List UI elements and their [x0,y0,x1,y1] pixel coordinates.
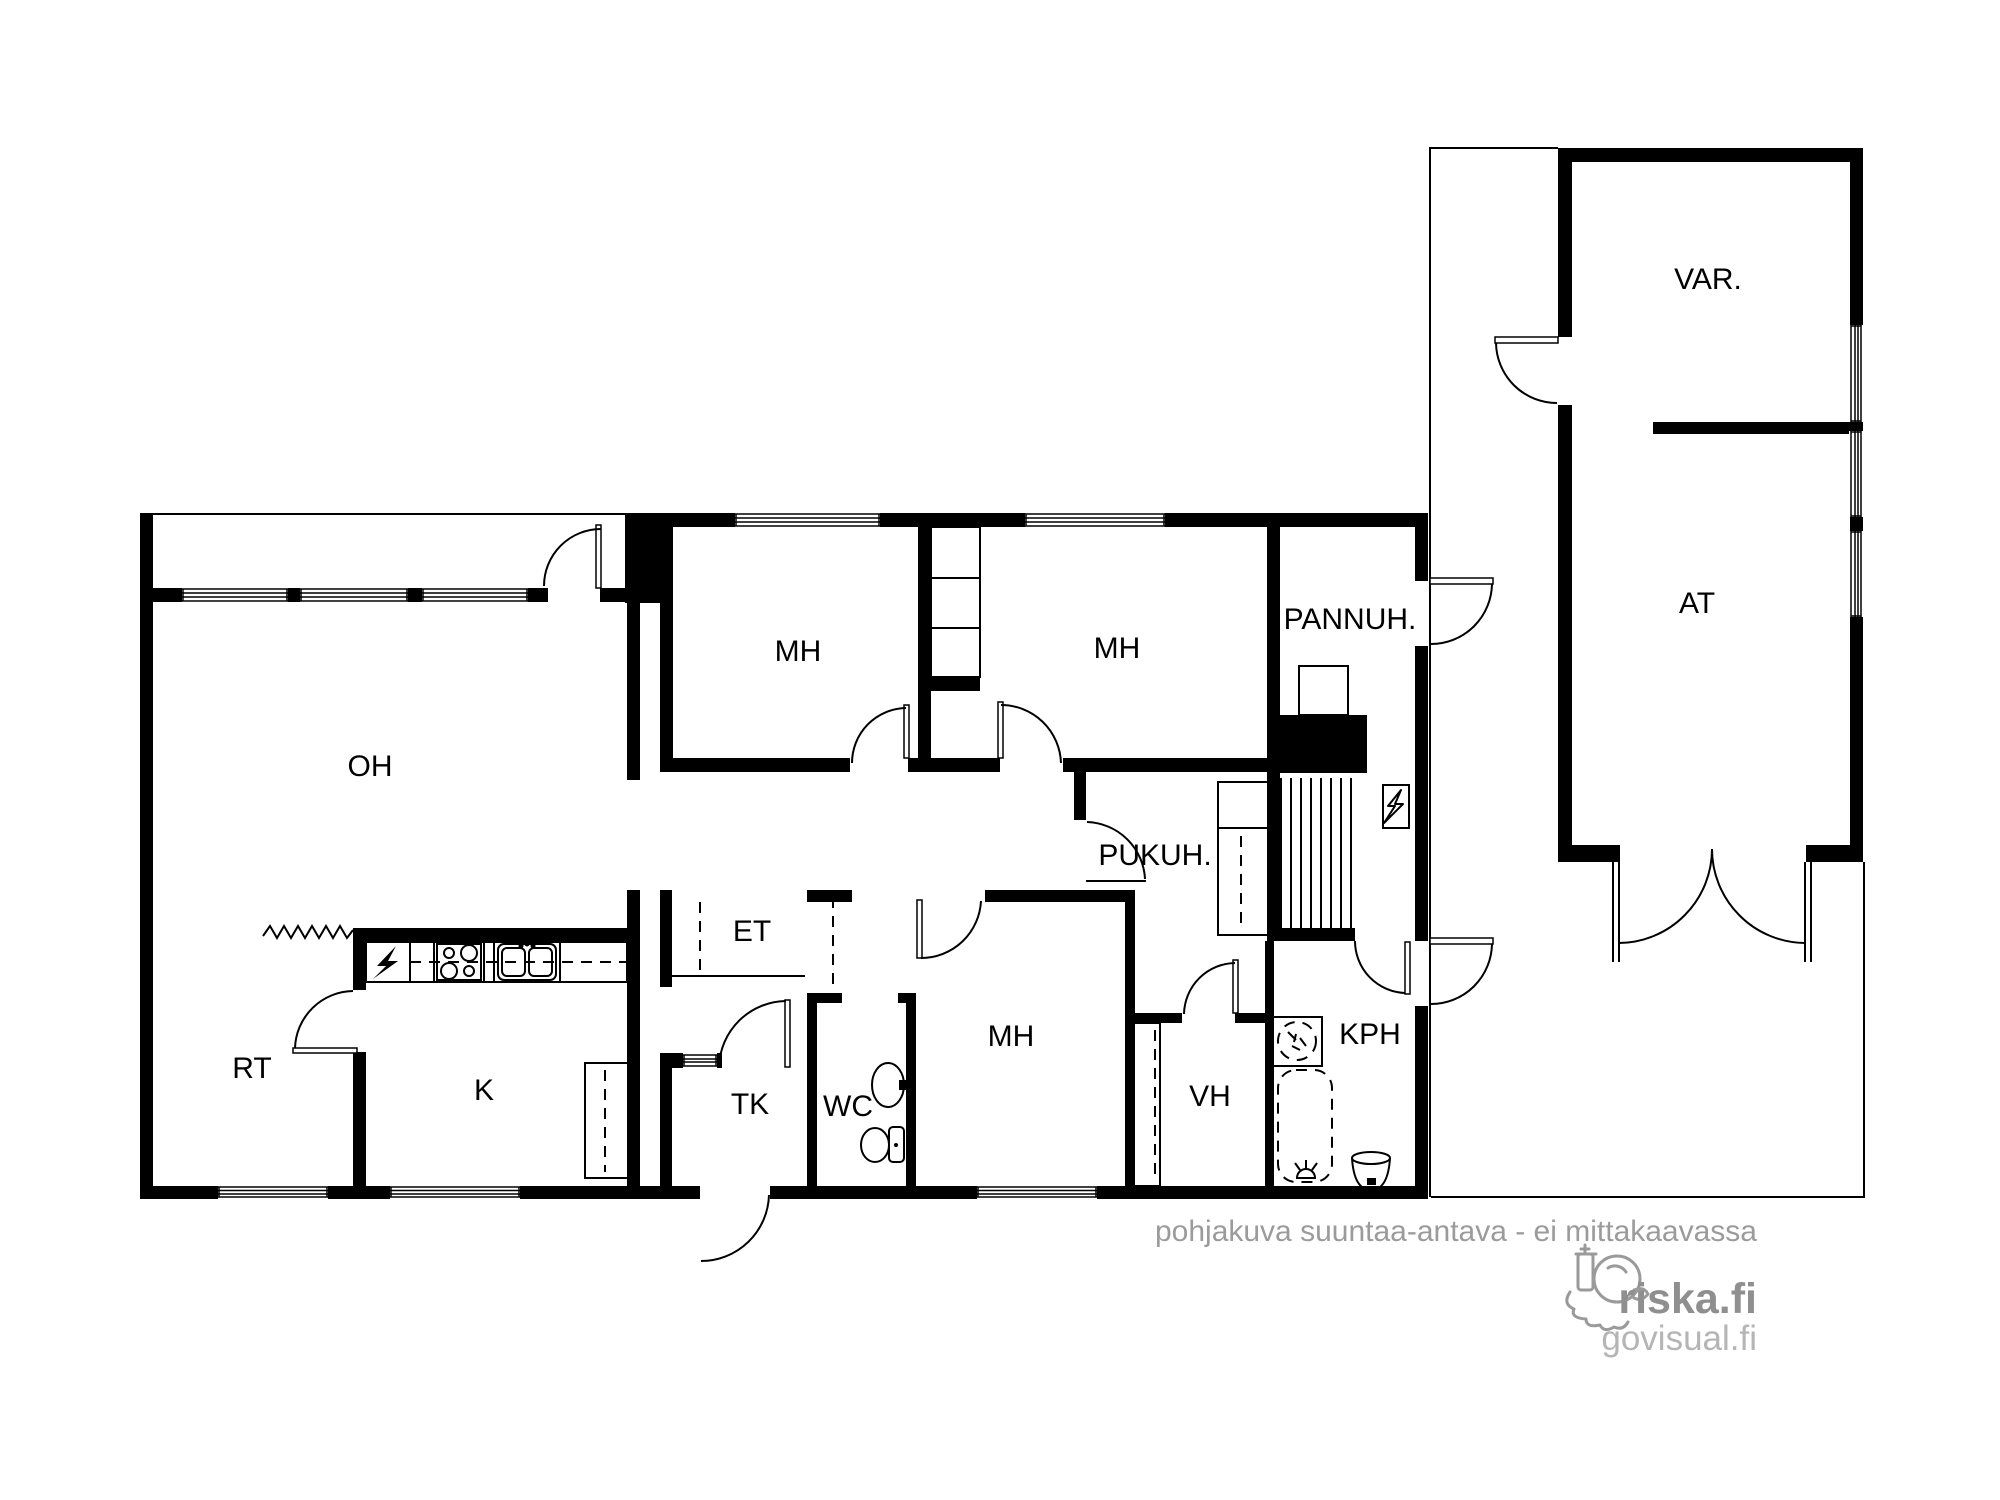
window [390,1185,520,1200]
closet [931,527,980,691]
room-label-kph: KPH [1339,1018,1401,1051]
wall-hall-closet-west [660,890,672,987]
wall-garage-south-a [1558,845,1620,862]
wall-kitchen-west [353,928,366,1186]
bedroom1-door [852,705,909,763]
footer: pohjakuva suuntaa-antava - ei mittakaava… [1155,1215,1757,1358]
wall-vestibule-west [660,1053,672,1186]
wall-hallway-north [660,758,1270,772]
boiler-icon [1299,666,1348,715]
room-label-et: ET [733,915,771,948]
wall-garage-west [1558,148,1572,848]
opening-kitchen-west-door [353,990,366,1052]
brand-secondary-text: govisual.fi [1601,1319,1757,1358]
opening-storage-door [1558,337,1572,405]
wall-garage-south-b [1806,845,1863,862]
brand-primary-text: riska.fi [1618,1275,1757,1323]
opening-hall-exit [1415,941,1428,1006]
window [735,512,880,528]
wall-livingroom-east [627,588,640,780]
window [683,1052,717,1069]
wall-bedroom1-east [918,527,931,772]
kitchen-door [293,991,357,1053]
garage-double-door [1613,849,1811,962]
terrace-door [544,525,601,588]
bathtub-icon [1278,1070,1332,1182]
room-label-vh: VH [1189,1080,1231,1113]
lightning-icon [373,946,398,979]
room-label-mh2: MH [1094,632,1141,665]
boilerroom-exterior-door [1430,578,1493,644]
sink-icon [498,942,556,981]
wall-bedroom3-east [1125,890,1135,1186]
room-label-tk: TK [731,1088,769,1121]
opening-bedroom2-door [1000,757,1063,773]
wall-south-outer [140,1186,1428,1199]
window [1849,531,1864,617]
window [1849,431,1864,517]
bedroom2-door [998,702,1061,763]
room-label-pannuh: PANNUH. [1284,603,1417,636]
wall-dressing-west [1074,772,1086,820]
room-label-k: K [474,1074,494,1107]
wall-stairs-south [1267,928,1355,941]
closet [1132,1023,1160,1186]
room-labels: OH RT K ET TK WC MH MH MH PANNUH. PUKUH.… [232,263,1742,1123]
room-label-pukuh: PUKUH. [1098,839,1211,872]
window [422,587,528,603]
closet-room-door [1184,960,1238,1014]
shower-icon [1273,1017,1322,1066]
window [1849,325,1864,422]
bathroom-door [1355,941,1410,994]
window [218,1185,328,1200]
wall-bedroom3-north-b [985,890,1132,902]
room-label-oh: OH [348,750,393,783]
room-label-wc: WC [823,1090,873,1123]
disclaimer-text: pohjakuva suuntaa-antava - ei mittakaava… [1155,1215,1757,1248]
room-label-rt: RT [232,1052,271,1085]
chimney-block [1268,715,1367,773]
opening-boilerroom-exit [1415,581,1428,646]
room-label-mh3: MH [988,1020,1035,1053]
opening-front-door [700,1185,770,1200]
opening-wc-door [842,992,898,1004]
room-label-at: AT [1679,587,1715,620]
opening-closetroom-door [1182,1012,1235,1024]
washbasin-icon [872,1063,907,1107]
window [977,1185,1097,1200]
laundry-basin-icon [1352,1152,1390,1190]
staircase [1281,778,1351,928]
bedroom3-door [917,900,981,958]
window [300,587,408,603]
front-door [701,1195,769,1261]
open-boundary-zigzag [263,926,353,938]
storage-door [1495,337,1558,403]
opening-terrace-door [548,587,600,603]
room-label-mh1: MH [775,635,822,668]
floor-plan: OH RT K ET TK WC MH MH MH PANNUH. PUKUH.… [0,0,2000,1500]
doors [293,337,1811,1261]
toilet-icon [861,1127,904,1162]
wall-west-outer [140,513,153,1199]
floor-plan-page: OH RT K ET TK WC MH MH MH PANNUH. PUKUH.… [0,0,2000,1500]
wall-storage-south [1653,422,1852,434]
wall-bedroom3-north-a [807,890,852,902]
closet [1218,782,1268,935]
vestibule-door [719,1000,790,1067]
wall-wc-west [807,993,817,1186]
wall-kitchen-north [353,928,640,942]
electrical-panel-icon [1383,785,1409,828]
hall-exterior-door [1430,938,1493,1004]
kitchen-counter [366,942,627,983]
room-label-var: VAR. [1674,263,1742,296]
wall-wc-east [906,993,916,1186]
window [182,587,288,603]
wall-bedroom1-west [660,527,673,772]
wall-garage-north [1558,148,1863,162]
window [1025,512,1165,528]
opening-bedroom1-door [850,757,908,773]
